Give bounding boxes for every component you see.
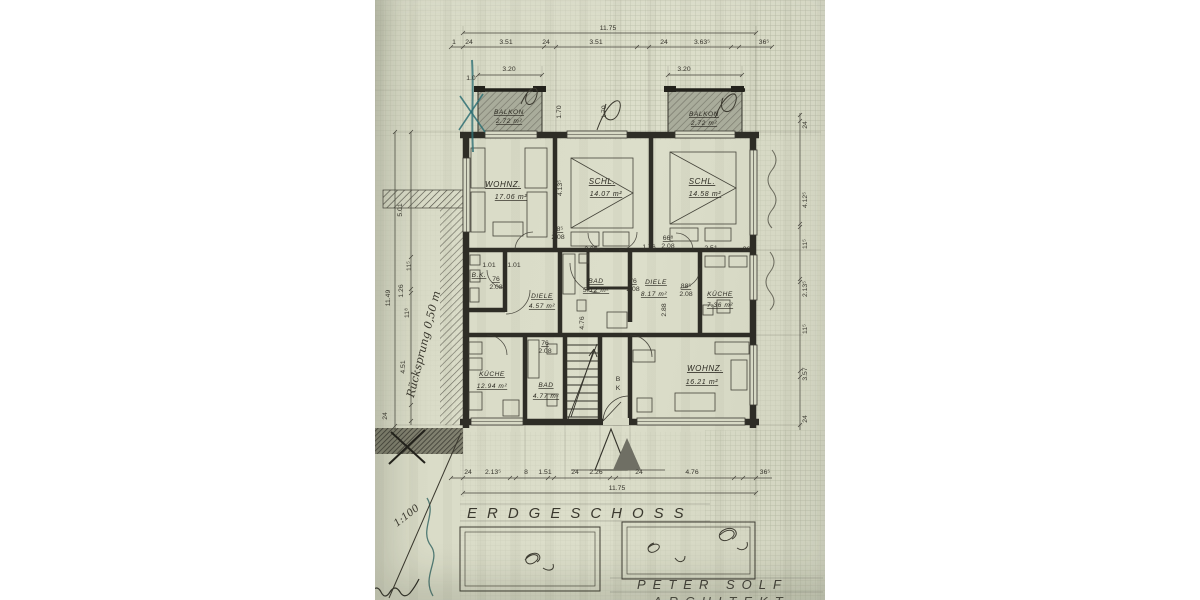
dimension-label: 1.51 xyxy=(538,469,551,476)
dimension-label: 36⁵ xyxy=(743,246,754,253)
dimension-label: 11⁵ xyxy=(802,324,809,334)
room-bk: B.K. xyxy=(472,272,487,279)
dimension-label: 2.08 xyxy=(679,291,692,298)
room-balkon-left: BALKON xyxy=(494,109,524,116)
dimension-label: 2.08 xyxy=(661,243,674,250)
dimension-label: 3.57 xyxy=(802,367,809,380)
top-total-dimension: 11.75 xyxy=(600,25,617,32)
room-bad-mid: BAD xyxy=(588,278,603,285)
dimension-label: 36⁵ xyxy=(760,469,771,476)
dimension-label: 88⁵ xyxy=(681,283,692,290)
dimension-label: 2.35 xyxy=(584,246,597,253)
dimension-label: 1.01 xyxy=(507,262,520,269)
architect-name: PETER SOLF xyxy=(637,577,788,592)
dimension-label: 66⁸ xyxy=(663,235,674,242)
dimension-label: B xyxy=(616,376,621,383)
room-bad-mid-area: 5.12 m² xyxy=(583,287,609,294)
dimension-label: 11⁵ xyxy=(802,239,809,249)
room-kueche-bottom-area: 12.94 m² xyxy=(477,383,508,390)
room-kueche-bottom: KÜCHE xyxy=(479,370,505,378)
room-wohnz-top-area: 17.06 m² xyxy=(495,194,527,201)
left-total-dimension: 11.49 xyxy=(385,290,392,307)
dimension-label: 24 xyxy=(542,39,550,46)
dimension-label: 5.01 xyxy=(397,203,404,216)
stairs xyxy=(566,344,599,419)
room-diele-left-area: 4.57 m² xyxy=(529,303,555,310)
dimension-label: 2.08 xyxy=(626,286,639,293)
dimension-label: 3.20 xyxy=(502,66,515,73)
room-bad-bottom: BAD xyxy=(538,382,553,389)
dimension-label: 1.76 xyxy=(642,244,655,251)
dimension-label: 3.20 xyxy=(677,66,690,73)
dimension-label: 76 xyxy=(541,340,549,347)
dimension-label: 24 xyxy=(571,469,579,476)
dimension-label: 1.70 xyxy=(556,105,563,118)
dimension-label: 88⁵ xyxy=(553,226,564,233)
dimension-label: 2.08 xyxy=(489,284,502,291)
dimension-label: 1.01 xyxy=(482,262,495,269)
room-balkon-right: BALKON xyxy=(689,111,719,118)
dimension-label: 8 xyxy=(524,469,528,476)
dimension-label: 24 xyxy=(802,415,809,423)
dimension-label: 24 xyxy=(465,39,473,46)
dimension-label: 24 xyxy=(660,39,668,46)
dimension-label: 2.13⁵ xyxy=(802,281,809,297)
dimension-label: 3.51 xyxy=(589,39,602,46)
room-wohnz-top: WOHNZ. xyxy=(485,180,521,189)
dimension-label: 1.0 xyxy=(466,75,476,82)
room-labels: BALKON 2.72 m² BALKON 2.72 m² WOHNZ. 17.… xyxy=(472,109,734,400)
dimension-label: 2.08 xyxy=(538,348,551,355)
dimension-label: 1.70 xyxy=(601,105,608,118)
dimension-label: 76 xyxy=(492,276,500,283)
dimension-label: 24 xyxy=(464,469,472,476)
dimension-label: 3.63⁵ xyxy=(694,39,710,46)
room-balkon-left-area: 2.72 m² xyxy=(495,118,522,125)
room-diele-left: DIELE xyxy=(531,293,553,300)
dimension-label: 24 xyxy=(382,412,389,420)
dimension-label: 2.08 xyxy=(551,234,564,241)
room-schl-2: SCHL. xyxy=(689,177,716,186)
dimension-label: 24 xyxy=(802,121,809,129)
dimension-label: 36⁵ xyxy=(759,39,770,46)
room-wohnz-bottom-area: 16.21 m² xyxy=(686,379,718,386)
dimension-label: 2.88 xyxy=(661,303,668,316)
bottom-total-dimension: 11.75 xyxy=(609,485,626,492)
room-schl-1: SCHL. xyxy=(589,177,616,186)
dimension-label: 4.51 xyxy=(400,360,407,373)
dimension-label: 4.13⁵ xyxy=(557,180,564,196)
architect-title: ARCHITEKT xyxy=(652,594,790,600)
room-schl-2-area: 14.58 m² xyxy=(689,191,721,198)
dimension-label: 76 xyxy=(629,278,637,285)
floor-plan-photo: 11.75 11.75 11.49 BALKON 2.72 m² BALKON … xyxy=(375,0,825,600)
dimension-label: K xyxy=(616,385,621,392)
room-wohnz-bottom: WOHNZ. xyxy=(687,364,723,373)
floor-plan-drawing: 11.75 11.75 11.49 BALKON 2.72 m² BALKON … xyxy=(375,0,825,600)
dimension-label: 4.76 xyxy=(579,316,586,329)
dimension-label: 3.51 xyxy=(499,39,512,46)
scanned-floor-plan-page: 11.75 11.75 11.49 BALKON 2.72 m² BALKON … xyxy=(0,0,1200,600)
dimension-label: 2.13⁵ xyxy=(485,469,501,476)
room-balkon-right-area: 2.72 m² xyxy=(690,120,717,127)
scale-note: 1:100 xyxy=(392,503,422,530)
dimension-label: 24 xyxy=(635,469,643,476)
dimension-label: 1.26 xyxy=(398,284,405,297)
dimension-label: 11⁸ xyxy=(404,308,411,318)
dimension-label: 1 xyxy=(452,39,456,46)
room-kueche-right: KÜCHE xyxy=(707,290,733,298)
room-diele-right: DIELE xyxy=(645,279,667,286)
floor-title: ERDGESCHOSS xyxy=(467,505,694,522)
dimension-label: 11⁵ xyxy=(406,261,413,271)
room-kueche-right-area: 7.36 m² xyxy=(707,302,733,309)
dimension-label: 2.26 xyxy=(589,469,602,476)
dimension-label: 2.51 xyxy=(704,245,717,252)
room-bad-bottom-area: 4.77 m² xyxy=(533,393,559,400)
dimension-label: 4.12⁵ xyxy=(802,192,809,208)
dimension-label: 4.76 xyxy=(685,469,698,476)
room-schl-1-area: 14.07 m² xyxy=(590,191,622,198)
room-diele-right-area: 8.17 m² xyxy=(641,291,667,298)
